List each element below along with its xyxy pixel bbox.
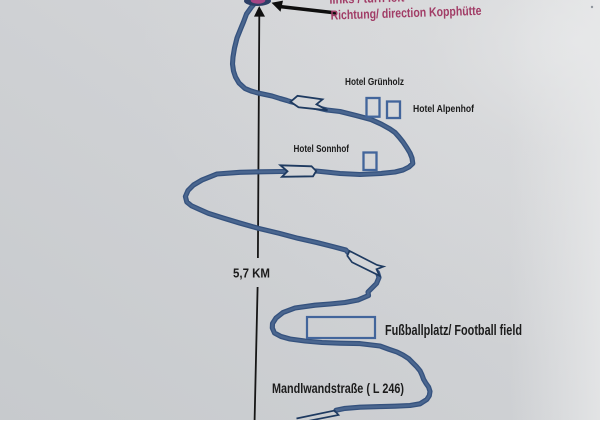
svg-text:5,7 KM: 5,7 KM: [233, 266, 270, 281]
svg-text:Hotel Sonnhof: Hotel Sonnhof: [294, 144, 350, 155]
svg-text:Fußballplatz/ Football field: Fußballplatz/ Football field: [385, 322, 522, 339]
svg-text:Hotel Alpenhof: Hotel Alpenhof: [413, 104, 475, 115]
svg-text:Mandlwandstraße ( L 246): Mandlwandstraße ( L 246): [272, 380, 404, 396]
svg-text:Hotel Grünholz: Hotel Grünholz: [345, 77, 404, 88]
